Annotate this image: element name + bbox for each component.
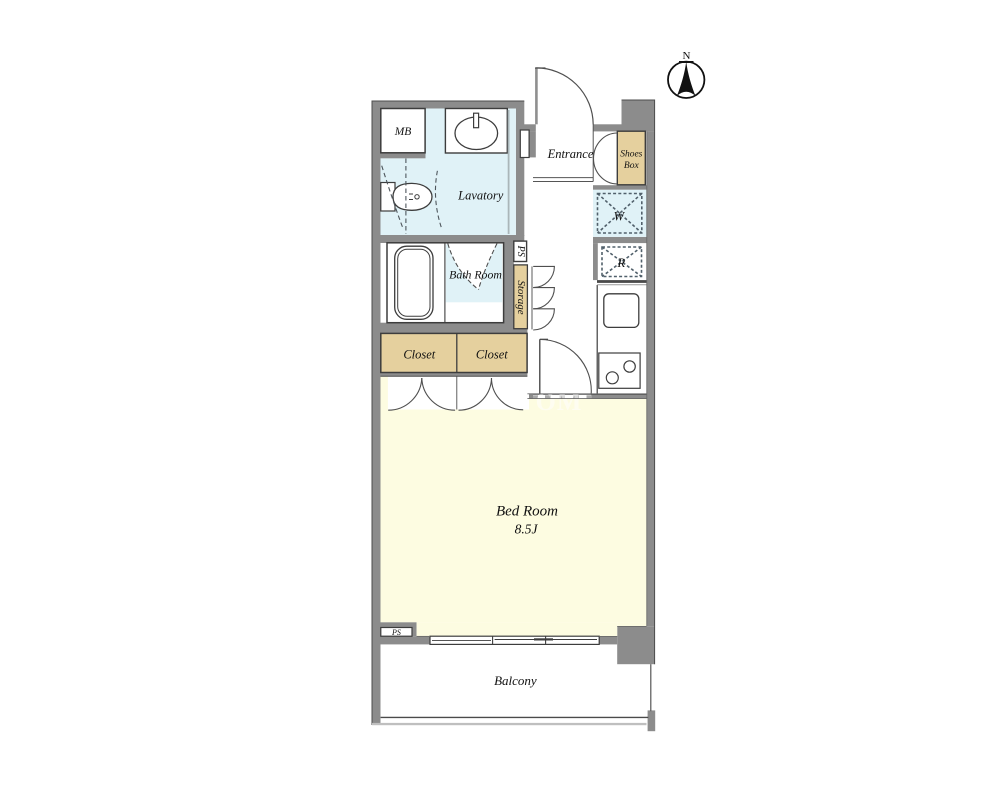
svg-text:PS: PS [391, 628, 401, 637]
svg-text:Storage: Storage [515, 280, 527, 314]
svg-text:Lavatory: Lavatory [457, 189, 504, 203]
svg-text:Entrance: Entrance [547, 147, 594, 161]
svg-text:R: R [616, 256, 625, 270]
svg-text:W: W [614, 210, 626, 224]
svg-text:Balcony: Balcony [494, 673, 537, 688]
svg-text:Shoes: Shoes [620, 150, 642, 160]
svg-text:Closet: Closet [403, 347, 435, 361]
svg-text:Bath Room: Bath Room [449, 268, 502, 282]
svg-text:N: N [683, 50, 691, 62]
svg-text:OM: OM [536, 387, 583, 416]
svg-text:PS: PS [515, 245, 526, 257]
svg-text:Box: Box [624, 161, 640, 171]
svg-text:8.5J: 8.5J [515, 522, 539, 537]
svg-text:Bed Room: Bed Room [496, 504, 558, 520]
svg-text:Closet: Closet [476, 347, 508, 361]
svg-text:MB: MB [394, 126, 412, 138]
